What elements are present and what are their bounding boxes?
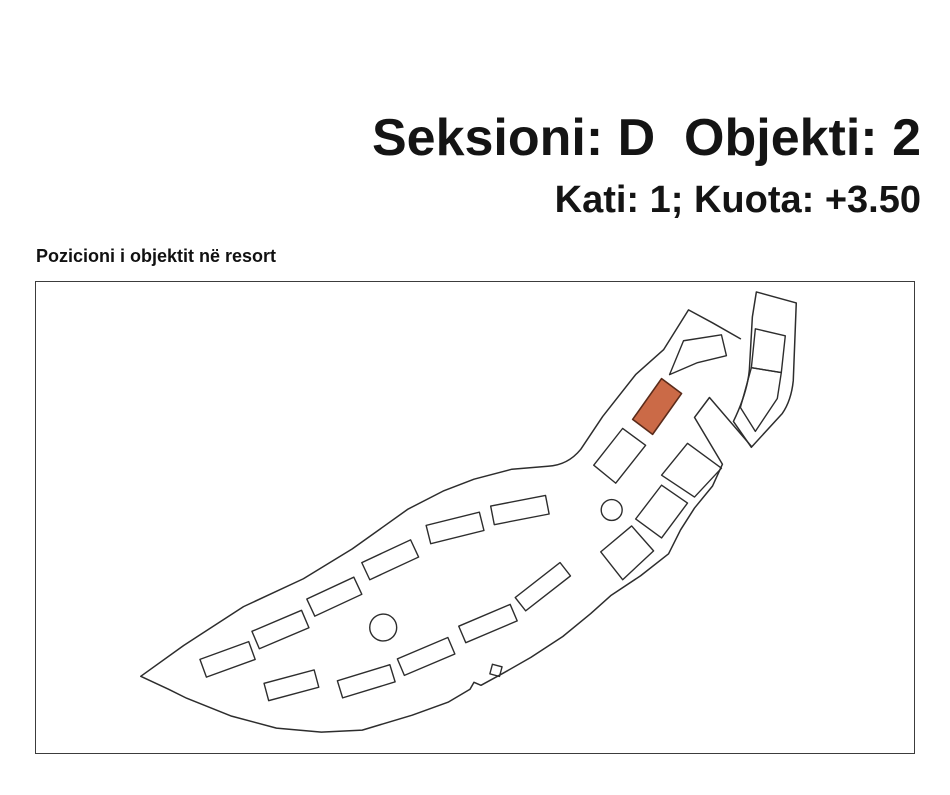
building-lower-4: [459, 604, 517, 642]
building-lower-2: [337, 665, 395, 698]
selected-object-marker: [633, 379, 682, 435]
building-upper-4: [362, 540, 419, 580]
building-lower-1: [264, 670, 319, 701]
page-subtitle: Kati: 1; Kuota: +3.50: [555, 181, 921, 219]
building-upper-3: [307, 577, 362, 616]
building-upper-5: [426, 512, 484, 544]
building-chevron: [670, 335, 727, 375]
building-small-square: [490, 664, 502, 676]
map-section-label: Pozicioni i objektit në resort: [36, 246, 276, 267]
building-upper-1: [200, 642, 255, 677]
resort-map-frame: [35, 281, 915, 754]
building-lower-5: [515, 563, 570, 611]
resort-map-svg: [36, 282, 914, 753]
building-lower-3: [397, 637, 455, 675]
annex-building-upper: [751, 329, 785, 373]
pool-circle-large: [370, 614, 397, 641]
building-upper-6: [491, 495, 549, 524]
page-title: Seksioni: D Objekti: 2: [372, 112, 921, 164]
building-diamond-1: [662, 443, 722, 497]
building-upper-2: [252, 610, 309, 648]
pool-circle-small: [601, 500, 622, 521]
building-neck: [594, 428, 646, 483]
